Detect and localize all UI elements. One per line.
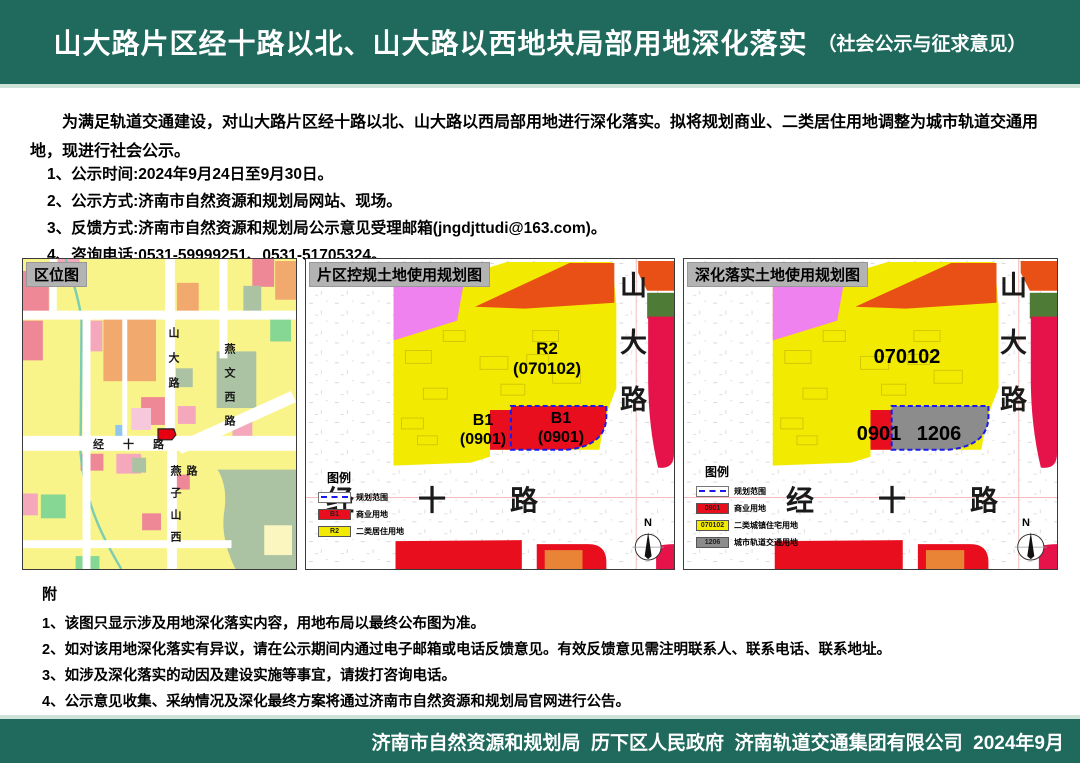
intro-paragraph: 为满足轨道交通建设，对山大路片区经十路以北、山大路以西局部用地进行深化落实。拟将… [30,108,1052,166]
legend-item-commercial: B1 商业用地 [318,509,404,520]
parcel-num-r2: (070102) [494,359,600,379]
residential-swatch: 070102 [696,520,729,531]
header-band: 山大路片区经十路以北、山大路以西地块局部用地深化落实 （社会公示与征求意见） [0,0,1080,88]
map-panels: 区位图 山大路 燕文西路 经十路 燕子山西路 [22,258,1058,570]
note-item-2: 2、如对该用地深化落实有异议，请在公示期间内通过电子邮箱或电话反馈意见。有效反馈… [42,637,891,663]
north-label: N [644,517,652,529]
commercial-swatch: 0901 [696,503,729,514]
legend-title: 图例 [327,469,404,486]
legend-current-plan: 图例 规划范围 B1 商业用地 R2 二类居住用地 [318,469,404,543]
boundary-swatch [696,486,729,497]
notice-item-feedback: 3、反馈方式:济南市自然资源和规划局公示意见受理邮箱(jngdjttudi@16… [47,215,606,242]
legend-title: 图例 [705,463,798,480]
legend-item-boundary: 规划范围 [318,492,404,503]
page-title: 山大路片区经十路以北、山大路以西地块局部用地深化落实 [53,22,807,62]
page-subtitle: （社会公示与征求意见） [818,29,1027,56]
parcel-code-b1-small: B1 [442,411,524,430]
notice-item-time: 1、公示时间:2024年9月24日至9月30日。 [47,161,606,188]
parcel-code-r2: R2 [494,339,600,359]
panel-current-plan: 片区控规土地使用规划图 山大路 经十路 R2 (070102) B1 (0901… [305,258,675,570]
panel-title-proposed-plan: 深化落实土地使用规划图 [687,262,868,287]
announcement-poster: 山大路片区经十路以北、山大路以西地块局部用地深化落实 （社会公示与征求意见） 为… [0,0,1080,763]
road-label-jingshilu: 经十路 [786,479,1062,519]
panel-proposed-plan: 深化落实土地使用规划图 山大路 经十路 070102 0901 1206 N 图… [683,258,1058,570]
road-label-yanzishanxilu: 燕子山西路 [167,465,199,569]
parcel-label-b1-large: B1 (0901) [518,409,604,447]
legend-proposed-plan: 图例 规划范围 0901 商业用地 070102 二类城镇住宅用地 1206 城… [696,463,798,554]
legend-item-residential: R2 二类居住用地 [318,526,404,537]
residential-swatch: R2 [318,526,351,537]
parcel-label-rail: 1206 [896,422,982,446]
parcel-label-b1-small: B1 (0901) [442,411,524,449]
notes-heading: 附 [42,583,891,604]
legend-item-residential: 070102 二类城镇住宅用地 [696,520,798,531]
boundary-swatch [318,492,351,503]
road-label-shandalu: 山大路 [992,271,1031,442]
parcel-label-r2: R2 (070102) [494,339,600,380]
parcel-num-b1-small: (0901) [442,430,524,449]
legend-item-rail: 1206 城市轨道交通用地 [696,537,798,548]
footer-organizations: 济南市自然资源和规划局 历下区人民政府 济南轨道交通集团有限公司 2024年9月 [371,728,1064,755]
legend-item-commercial: 0901 商业用地 [696,503,798,514]
panel-title-current-plan: 片区控规土地使用规划图 [309,262,490,287]
road-label-yanwenxilu: 燕文西路 [221,343,237,439]
panel-title-location: 区位图 [26,262,87,287]
note-item-3: 3、如涉及深化落实的动因及建设实施等事宜，请拨打咨询电话。 [42,663,891,689]
parcel-num-b1: (0901) [518,428,604,447]
location-map-graphic [23,259,296,569]
footer-band: 济南市自然资源和规划局 历下区人民政府 济南轨道交通集团有限公司 2024年9月 [0,715,1080,763]
notice-item-method: 2、公示方式:济南市自然资源和规划局网站、现场。 [47,188,606,215]
legend-item-boundary: 规划范围 [696,486,798,497]
notes-section: 附 1、该图只显示涉及用地深化落实内容，用地布局以最终公布图为准。 2、如对该用… [42,583,891,715]
road-label-shandalu: 山大路 [165,327,181,402]
parcel-label-residential: 070102 [854,345,960,369]
road-label-jingshilu: 经十路 [93,436,183,452]
notice-list: 1、公示时间:2024年9月24日至9月30日。 2、公示方式:济南市自然资源和… [47,161,606,269]
rail-swatch: 1206 [696,537,729,548]
road-label-shandalu: 山大路 [612,271,651,442]
note-item-4: 4、公示意见收集、采纳情况及深化最终方案将通过济南市自然资源和规划局官网进行公告… [42,689,891,715]
north-label: N [1022,517,1030,529]
panel-location-map: 区位图 山大路 燕文西路 经十路 燕子山西路 [22,258,297,570]
note-item-1: 1、该图只显示涉及用地深化落实内容，用地布局以最终公布图为准。 [42,611,891,637]
commercial-swatch: B1 [318,509,351,520]
parcel-code-b1: B1 [518,409,604,428]
